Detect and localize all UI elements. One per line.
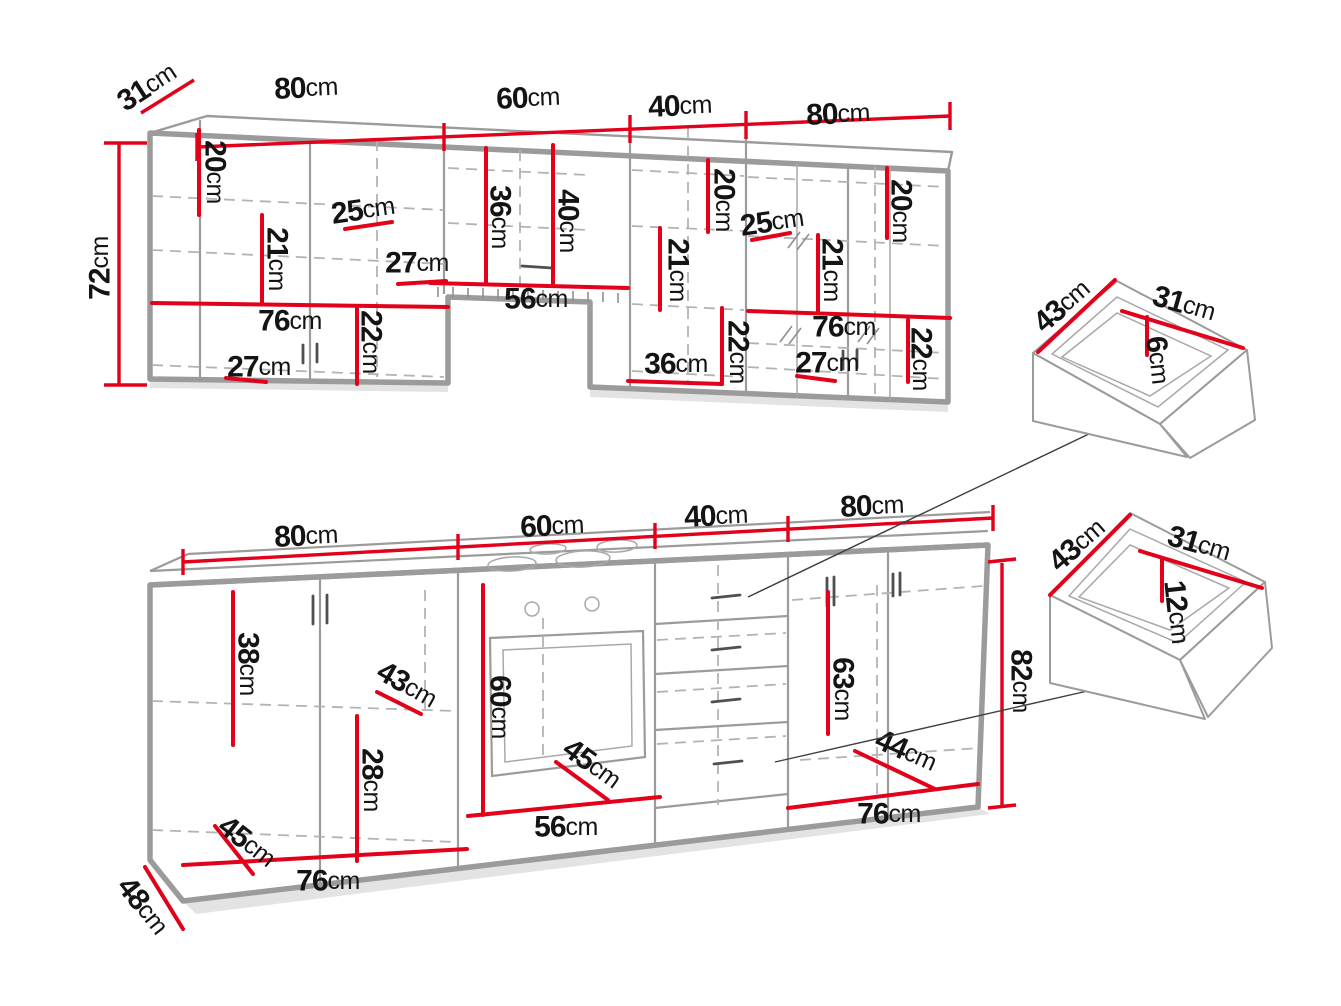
dim-lower-s4-door: 63cm: [827, 657, 860, 721]
dim-upper-width-1: 80cm: [273, 70, 338, 106]
dim-upper-width-2: 60cm: [495, 80, 560, 116]
dim-lower-s1-inner-width: 76cm: [296, 865, 360, 898]
lower-cabinet-run: 80cm 60cm 40cm 80cm 82cm 48cm 38cm 43cm …: [110, 488, 1037, 941]
dim-upper-s1-door: 21cm: [261, 227, 294, 291]
dim-upper-s1-base: 27cm: [227, 351, 291, 384]
dim-upper-s4-bottom-door: 22cm: [905, 327, 938, 391]
dim-upper-s4-door: 21cm: [816, 238, 849, 302]
dim-upper-s3-door: 21cm: [662, 238, 695, 302]
dim-upper-s3-bottom-width: 36cm: [644, 348, 708, 381]
dim-upper-s4-base: 27cm: [795, 347, 859, 380]
dim-upper-s1-inner-width: 76cm: [258, 305, 322, 338]
dim-lower-width-3: 40cm: [683, 498, 748, 534]
kitchen-dimension-diagram: 31cm 80cm 60cm 40cm 80cm 72cm 20cm 21cm …: [0, 0, 1341, 1006]
dim-upper-width-4: 80cm: [805, 96, 870, 132]
dim-upper-s1-hood-gap: 27cm: [385, 247, 449, 280]
dim-upper-s3-top: 20cm: [708, 168, 741, 232]
drawer-small-detail: 43cm 31cm 6cm: [1027, 273, 1255, 458]
dim-lower-s4-inner-width: 76cm: [857, 798, 921, 831]
dim-lower-oven-opening: 56cm: [534, 811, 598, 844]
dim-upper-hood-opening: 56cm: [504, 283, 568, 316]
dim-upper-s3-bottom-door: 22cm: [722, 320, 755, 384]
drawer-large-detail: 43cm 31cm 12cm: [1042, 512, 1272, 719]
dim-upper-hood-front: 36cm: [484, 185, 517, 249]
dim-upper-s1-top: 20cm: [199, 140, 232, 204]
diagram-canvas: 31cm 80cm 60cm 40cm 80cm 72cm 20cm 21cm …: [0, 0, 1341, 1006]
dim-lower-s1-door-top: 38cm: [232, 632, 265, 696]
dim-upper-width-3: 40cm: [647, 88, 712, 124]
dim-upper-hood-total: 40cm: [552, 189, 585, 253]
dim-lower-s1-door-bottom: 28cm: [356, 748, 389, 812]
dim-upper-s1-bottom-door: 22cm: [355, 310, 388, 374]
dim-upper-s4-inner-width: 76cm: [812, 311, 876, 344]
dim-lower-width-4: 80cm: [839, 488, 904, 524]
dim-lower-width-1: 80cm: [273, 518, 338, 554]
dim-lower-oven-height: 60cm: [484, 675, 517, 739]
dim-lower-width-2: 60cm: [519, 508, 584, 544]
dim-upper-s4-top: 20cm: [885, 179, 918, 243]
upper-cabinet-run: 31cm 80cm 60cm 40cm 80cm 72cm 20cm 21cm …: [84, 56, 953, 412]
dim-upper-height: 72cm: [84, 236, 117, 300]
